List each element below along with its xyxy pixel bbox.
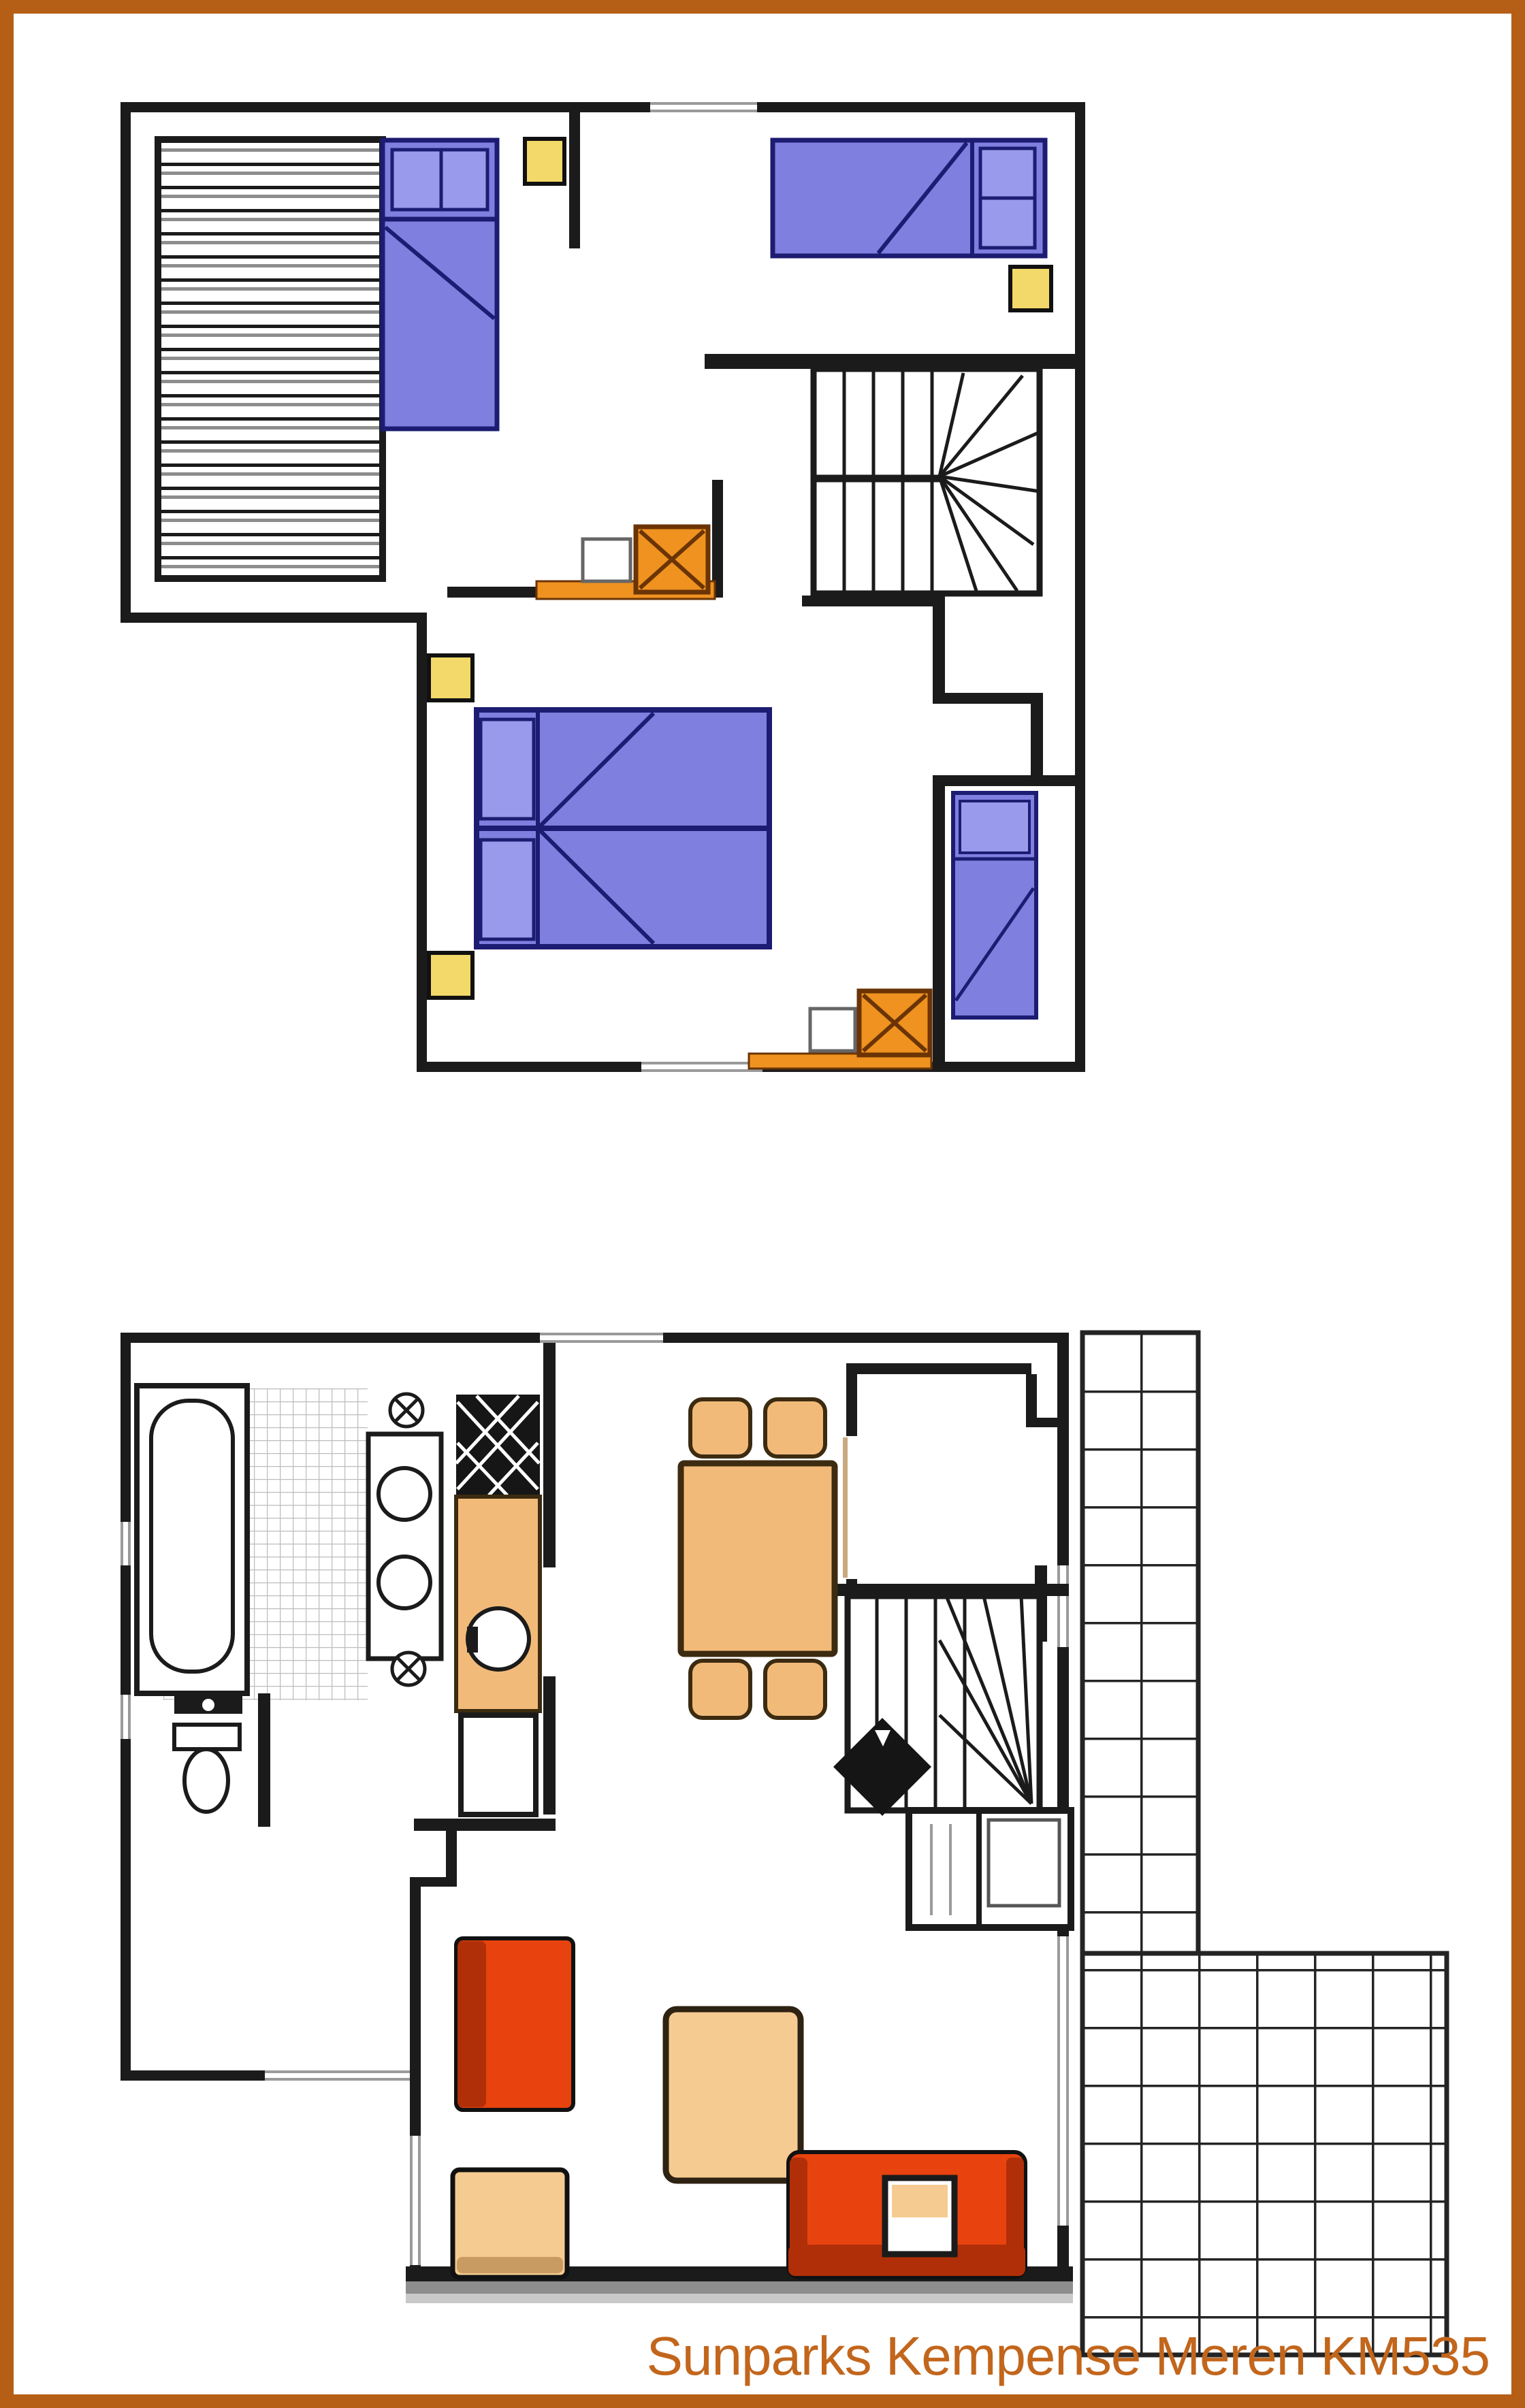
floor-plan-page: Sunparks Kempense Meren KM535 xyxy=(0,0,1525,2408)
plan-caption: Sunparks Kempense Meren KM535 xyxy=(647,2325,1490,2388)
page-border-frame xyxy=(0,0,1525,2408)
